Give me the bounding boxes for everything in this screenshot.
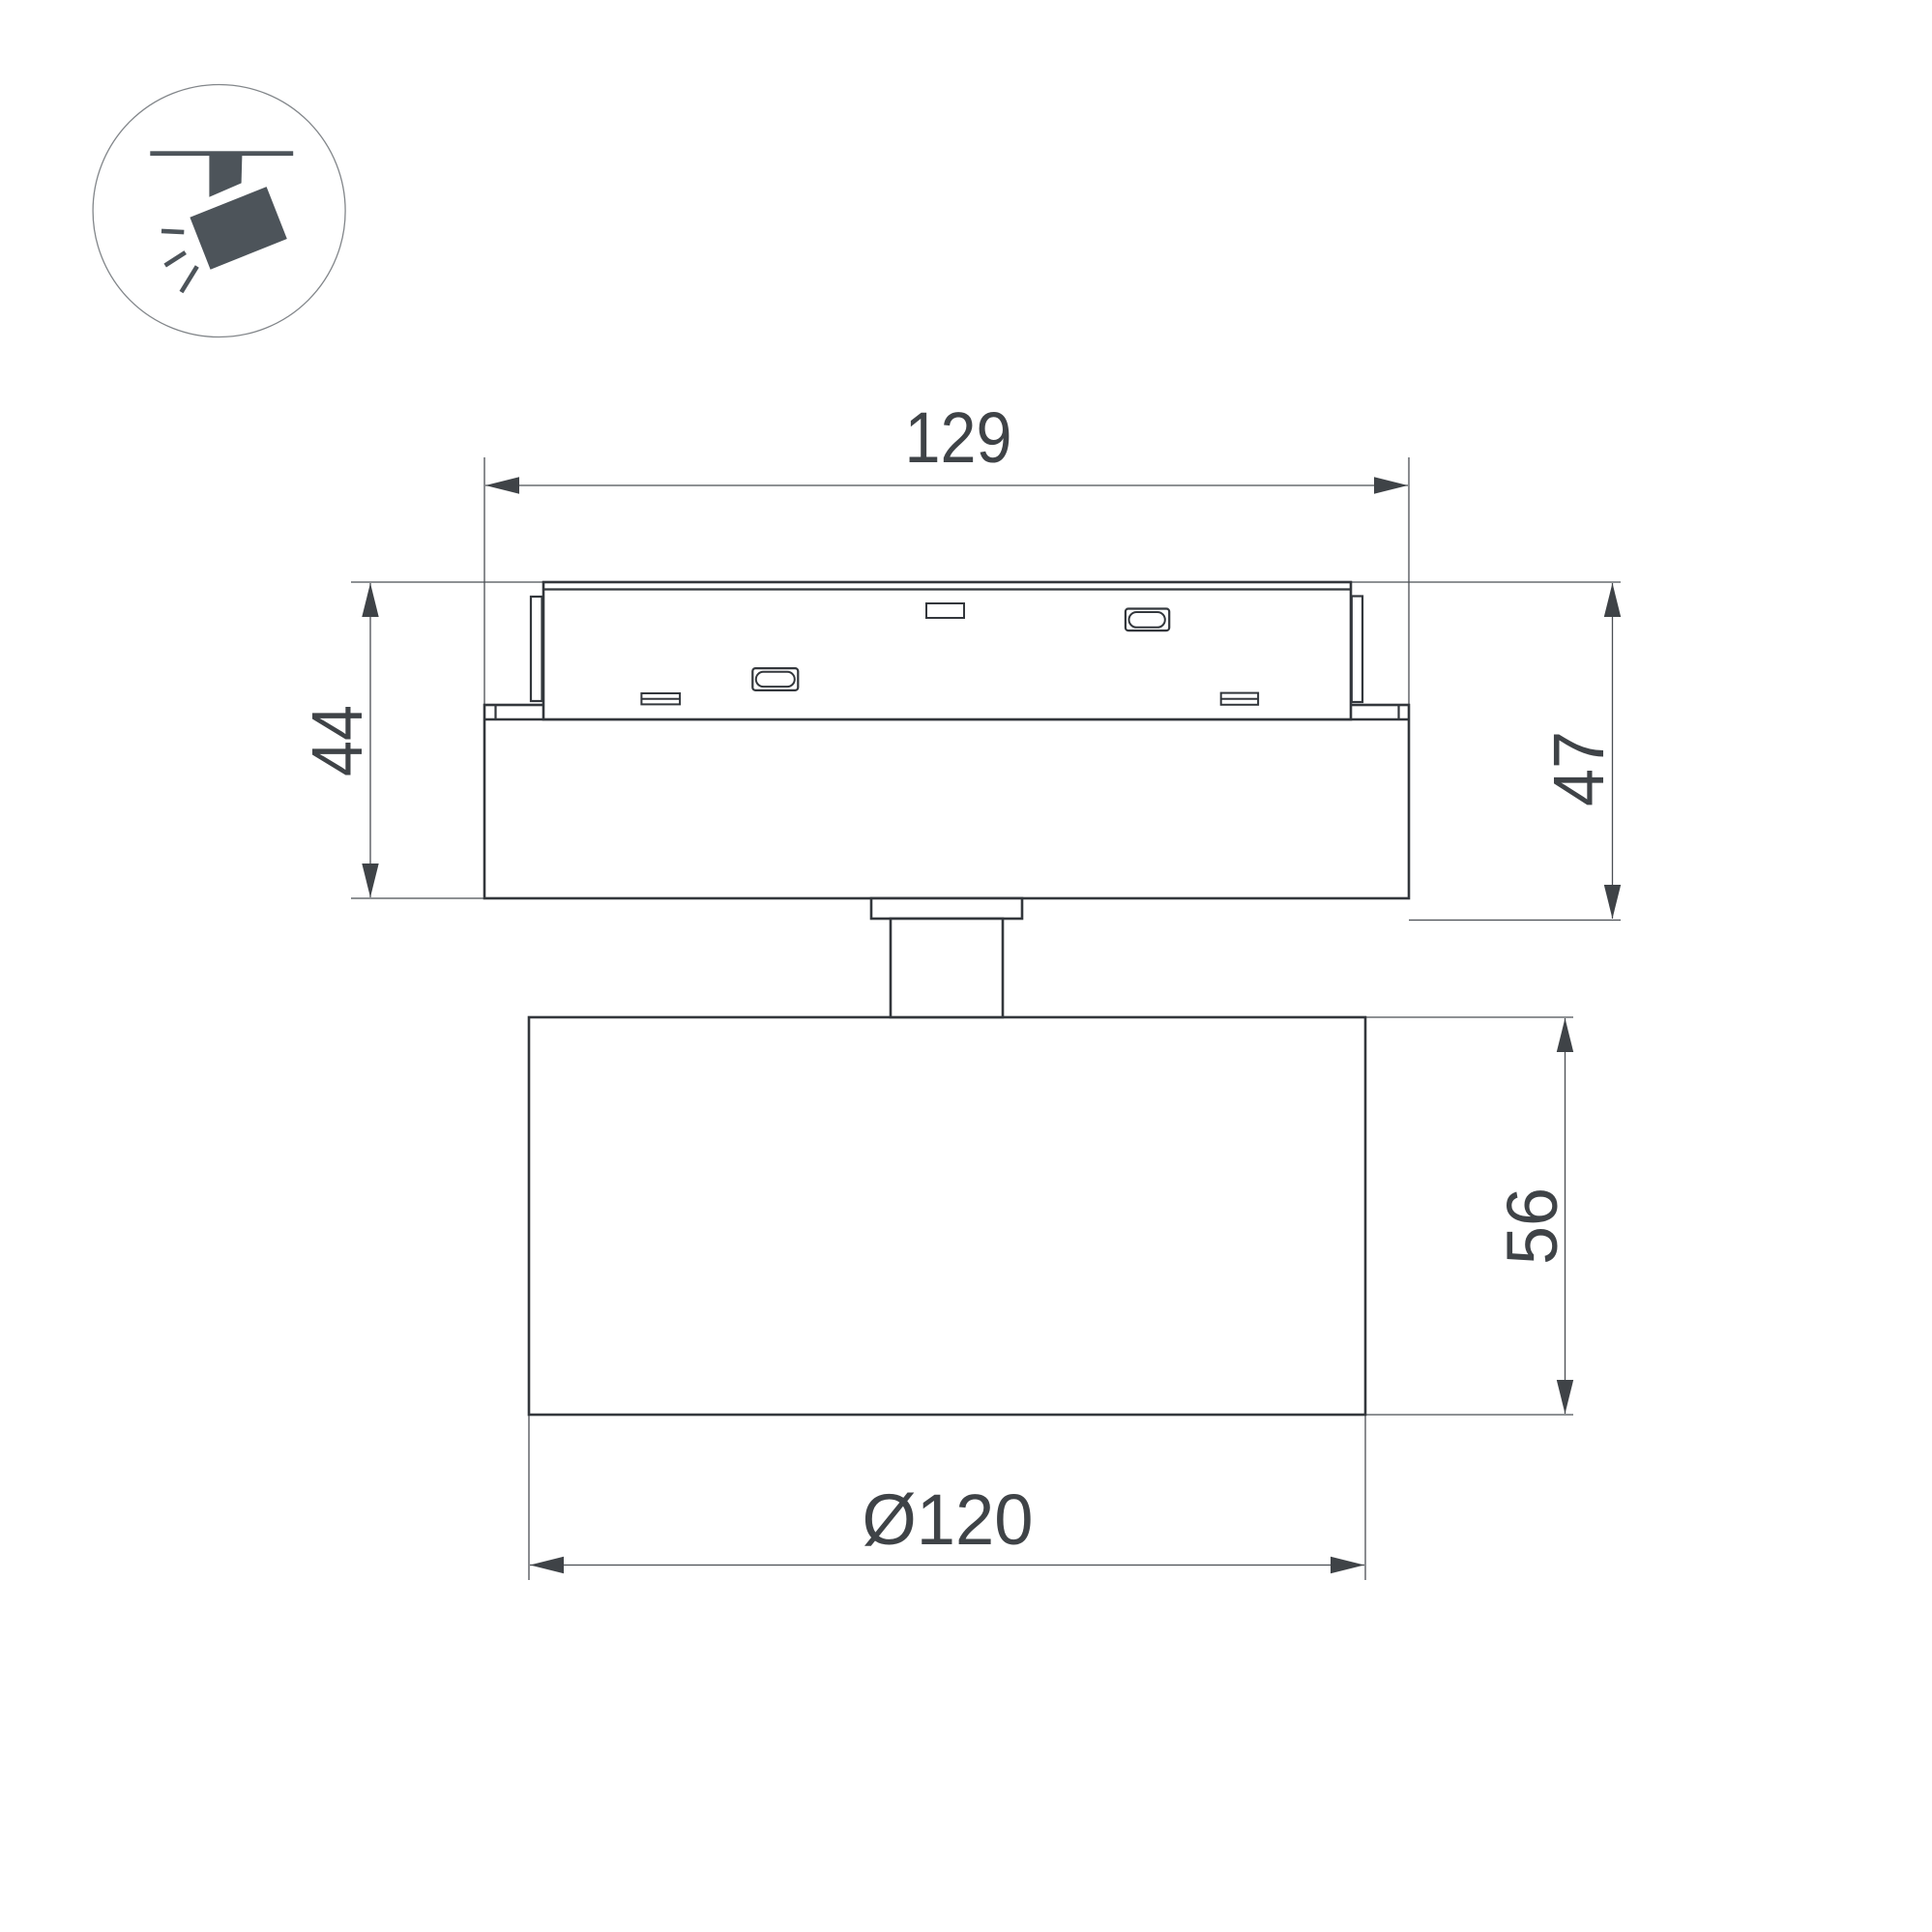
svg-text:47: 47 (1538, 731, 1619, 806)
svg-text:56: 56 (1492, 1187, 1572, 1265)
svg-text:129: 129 (905, 397, 1012, 478)
svg-text:44: 44 (297, 705, 377, 776)
svg-text:Ø120: Ø120 (863, 1479, 1034, 1560)
